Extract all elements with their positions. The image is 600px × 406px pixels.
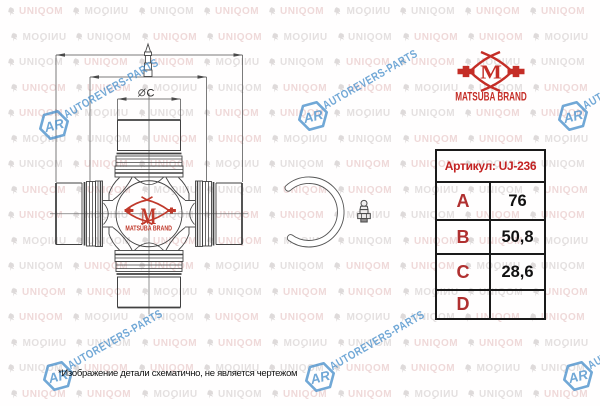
svg-text:M: M (480, 61, 502, 83)
svg-text:AR: AR (561, 107, 585, 127)
svg-text:AR: AR (566, 367, 590, 387)
svg-text:AUTOREVERS-PARTS: AUTOREVERS-PARTS (66, 307, 166, 372)
svg-text:AUTOREVERS-PARTS: AUTOREVERS-PARTS (321, 47, 421, 112)
svg-text:AR: AR (42, 116, 66, 136)
svg-text:C: C (147, 88, 155, 100)
svg-text:MATSUBA BRAND: MATSUBA BRAND (125, 225, 172, 233)
svg-text:AR: AR (301, 107, 325, 127)
svg-text:AR: AR (308, 368, 332, 388)
svg-text:MATSUBA BRAND: MATSUBA BRAND (455, 91, 527, 104)
svg-text:AUTOREVERS-PARTS: AUTOREVERS-PARTS (581, 47, 600, 112)
svg-text:AUTOREVERS-PARTS: AUTOREVERS-PARTS (586, 307, 600, 372)
svg-text:AUTOREVERS-PARTS: AUTOREVERS-PARTS (328, 308, 428, 373)
